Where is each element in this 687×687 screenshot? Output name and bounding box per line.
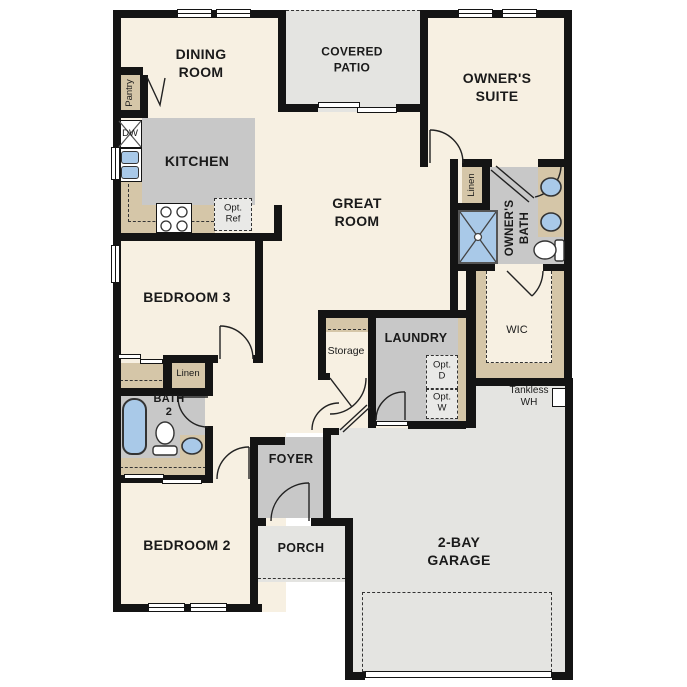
label-porch: PORCH bbox=[278, 540, 325, 556]
label-kitchen: KITCHEN bbox=[165, 152, 229, 170]
label-bedroom-3: BEDROOM 3 bbox=[143, 288, 231, 306]
label-storage: Storage bbox=[328, 345, 365, 359]
label-opt-dryer: Opt. D bbox=[433, 360, 451, 383]
label-bath-2: BATH 2 bbox=[154, 393, 185, 419]
owners-toilet bbox=[534, 240, 564, 261]
label-pantry: Pantry bbox=[124, 79, 136, 106]
label-wic: WIC bbox=[506, 323, 527, 337]
stove-burners bbox=[161, 207, 187, 231]
pantry-bifold-door bbox=[147, 77, 165, 105]
owners-bath-sinks bbox=[541, 178, 561, 231]
fixtures-and-doors-layer bbox=[0, 0, 687, 687]
label-opt-ref: Opt. Ref bbox=[224, 203, 242, 226]
label-owners-bath: OWNER'S BATH bbox=[503, 200, 533, 257]
label-bedroom-2: BEDROOM 2 bbox=[143, 536, 231, 554]
label-dining-room: DINING ROOM bbox=[176, 45, 227, 81]
label-foyer: FOYER bbox=[269, 451, 314, 467]
shower-x bbox=[460, 212, 496, 262]
bath2-toilet bbox=[153, 422, 177, 455]
label-great-room: GREAT ROOM bbox=[332, 194, 381, 230]
label-covered-patio: COVERED PATIO bbox=[321, 44, 382, 75]
label-owners-suite: OWNER'S SUITE bbox=[463, 69, 531, 105]
label-laundry: LAUNDRY bbox=[385, 330, 448, 346]
label-dishwasher: DW bbox=[122, 128, 138, 140]
label-tankless-wh: Tankless WH bbox=[510, 385, 549, 409]
floor-plan: DINING ROOM COVERED PATIO OWNER'S SUITE … bbox=[0, 0, 687, 687]
bath2-sink bbox=[182, 438, 202, 454]
label-linen-owner: Linen bbox=[466, 173, 478, 196]
label-opt-washer: Opt. W bbox=[433, 392, 451, 415]
label-garage: 2-BAY GARAGE bbox=[427, 533, 490, 569]
label-linen-hall: Linen bbox=[176, 368, 199, 380]
